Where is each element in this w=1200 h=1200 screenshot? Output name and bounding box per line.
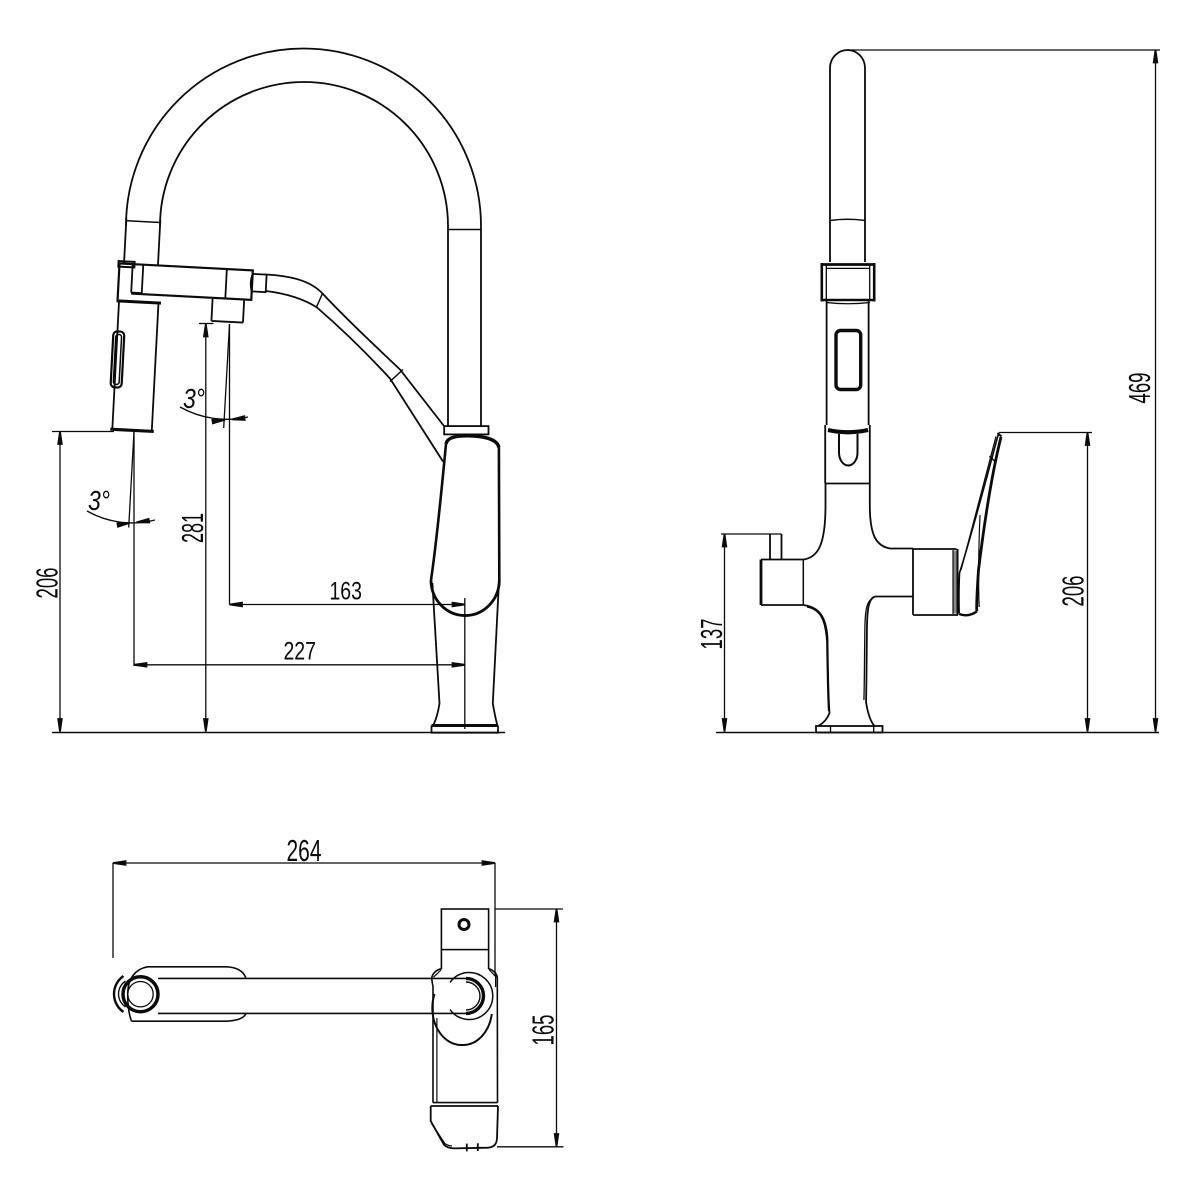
svg-text:165: 165 — [527, 1015, 561, 1046]
svg-text:206: 206 — [31, 568, 65, 599]
svg-text:281: 281 — [176, 513, 210, 543]
svg-text:206: 206 — [1057, 576, 1091, 607]
svg-text:264: 264 — [287, 834, 322, 868]
svg-text:227: 227 — [283, 638, 316, 666]
svg-text:137: 137 — [695, 619, 729, 650]
svg-text:469: 469 — [1123, 373, 1157, 404]
svg-text:3°: 3° — [88, 485, 110, 516]
svg-text:3°: 3° — [183, 383, 205, 414]
svg-text:163: 163 — [329, 577, 362, 605]
